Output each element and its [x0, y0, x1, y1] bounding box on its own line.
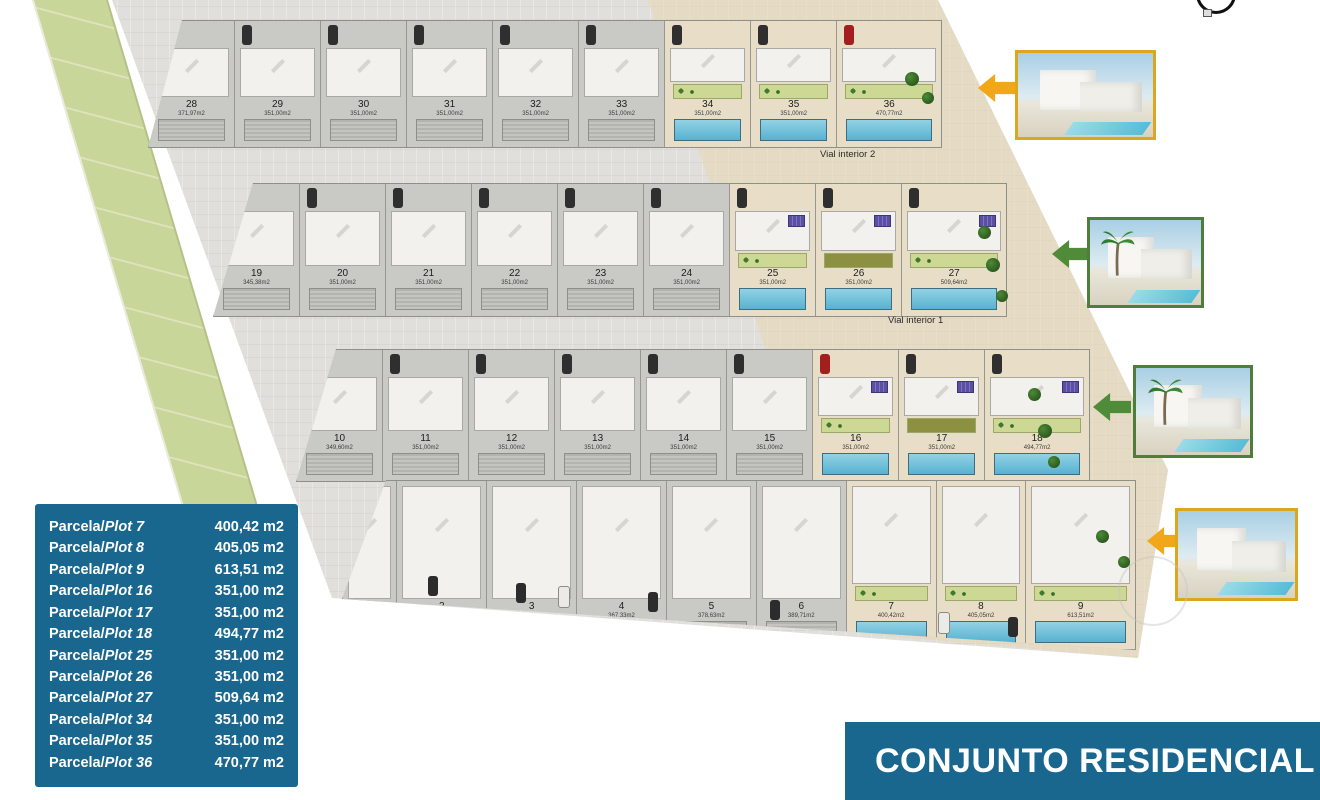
palm-tree-icon — [1094, 223, 1141, 277]
garden-patch — [673, 84, 742, 99]
house-footprint — [821, 211, 896, 251]
plot-4: 4 367,33m2 — [577, 481, 667, 649]
driveway — [392, 453, 459, 475]
car-icon — [758, 25, 768, 45]
driveway — [352, 621, 387, 643]
villa-building — [1141, 249, 1192, 280]
house-footprint — [492, 486, 571, 599]
tree-icon — [1038, 424, 1052, 438]
car-icon — [479, 188, 489, 208]
compass-icon — [1196, 0, 1236, 14]
car-icon — [307, 188, 317, 208]
plot-label: 16 351,00m2 — [818, 433, 893, 452]
plot-row-19-27: 19 345,38m2 20 351,00m2 21 351,00m2 — [213, 183, 1007, 317]
pool — [822, 453, 889, 475]
house-footprint — [904, 377, 979, 416]
house-footprint — [584, 48, 659, 97]
legend-row: Parcela/Plot 9613,51 m2 — [49, 560, 284, 581]
plot-27: 27 509,64m2 — [902, 184, 1006, 316]
car-icon — [992, 354, 1002, 374]
driveway — [416, 119, 483, 141]
plot-label: 7 400,42m2 — [852, 601, 931, 620]
tree-icon — [986, 258, 1000, 272]
house-footprint — [402, 486, 481, 599]
plot-label: 9 613,51m2 — [1031, 601, 1130, 620]
plot-12: 12 351,00m2 — [469, 350, 555, 481]
driveway — [588, 119, 655, 141]
car-icon — [938, 612, 950, 634]
car-icon — [909, 188, 919, 208]
house-footprint — [391, 211, 466, 266]
plot-7: 7 400,42m2 — [847, 481, 937, 649]
driveway — [330, 119, 397, 141]
tree-icon — [996, 290, 1008, 302]
legend-row: Parcela/Plot 26351,00 m2 — [49, 667, 284, 688]
villa-photo — [1087, 217, 1204, 308]
house-footprint — [412, 48, 487, 97]
house-footprint — [563, 211, 638, 266]
car-icon — [500, 25, 510, 45]
plot-label: 31 351,00m2 — [412, 99, 487, 118]
driveway — [158, 119, 225, 141]
house-footprint — [388, 377, 463, 431]
plot-label: 13 351,00m2 — [560, 433, 635, 452]
car-icon — [734, 354, 744, 374]
legend-row: Parcela/Plot 36470,77 m2 — [49, 753, 284, 774]
car-icon — [414, 25, 424, 45]
plot-17: 17 351,00m2 — [899, 350, 985, 481]
garden-patch — [738, 253, 807, 268]
plot-35: 35 351,00m2 — [751, 21, 837, 147]
garden-patch — [855, 586, 928, 601]
car-icon — [328, 25, 338, 45]
legend-row: Parcela/Plot 7400,42 m2 — [49, 517, 284, 538]
plot-22: 22 351,00m2 — [472, 184, 558, 316]
driveway — [650, 453, 717, 475]
garden-patch — [1034, 586, 1127, 601]
plot-36: 36 470,77m2 — [837, 21, 941, 147]
driveway — [309, 288, 376, 310]
driveway — [406, 621, 477, 643]
car-icon — [586, 25, 596, 45]
plot-32: 32 351,00m2 — [493, 21, 579, 147]
pool — [760, 119, 827, 141]
plot-label: 11 351,00m2 — [388, 433, 463, 452]
plot-label: 19 345,38m2 — [219, 268, 294, 287]
car-icon — [651, 188, 661, 208]
car-icon — [823, 188, 833, 208]
house-footprint — [474, 377, 549, 431]
plot-label: 34 351,00m2 — [670, 99, 745, 118]
pool — [908, 453, 975, 475]
road-label-vial-interior-2: Vial interior 2 — [820, 149, 875, 160]
house-footprint — [842, 48, 936, 82]
garden-patch — [845, 84, 933, 99]
car-icon — [516, 583, 526, 603]
house-footprint — [762, 486, 841, 599]
car-icon — [770, 600, 780, 620]
pool — [739, 288, 806, 310]
plot-label: 26 351,00m2 — [821, 268, 896, 287]
plot-33: 33 351,00m2 — [579, 21, 665, 147]
car-icon — [820, 354, 830, 374]
villa-building — [1188, 398, 1240, 429]
house-footprint — [477, 211, 552, 266]
car-icon — [565, 188, 575, 208]
plot-label: 14 351,00m2 — [646, 433, 721, 452]
plot-label: 35 351,00m2 — [756, 99, 831, 118]
banner-title: CONJUNTO RESIDENCIAL — [875, 742, 1315, 781]
tree-icon — [922, 92, 934, 104]
car-icon — [672, 25, 682, 45]
car-icon — [648, 354, 658, 374]
plot-label: 25 351,00m2 — [735, 268, 810, 287]
plot-26: 26 351,00m2 — [816, 184, 902, 316]
legend-row: Parcela/Plot 35351,00 m2 — [49, 731, 284, 752]
driveway — [395, 288, 462, 310]
plot-label: 10 349,60m2 — [302, 433, 377, 452]
plot-label: 36 470,77m2 — [842, 99, 936, 118]
plot-2: 2 300,30m2 — [397, 481, 487, 649]
plot-label: 22 351,00m2 — [477, 268, 552, 287]
house-footprint — [646, 377, 721, 431]
driveway — [244, 119, 311, 141]
plot-6: 6 389,71m2 — [757, 481, 847, 649]
villa-pool — [1175, 439, 1250, 452]
plot-label: 29 351,00m2 — [240, 99, 315, 118]
garden-patch — [910, 253, 998, 268]
plot-14: 14 351,00m2 — [641, 350, 727, 481]
house-footprint — [735, 211, 810, 251]
plot-label: 15 351,00m2 — [732, 433, 807, 452]
car-icon — [1008, 617, 1018, 637]
car-icon — [844, 25, 854, 45]
house-footprint — [582, 486, 661, 599]
plot-30: 30 351,00m2 — [321, 21, 407, 147]
house-footprint — [672, 486, 751, 599]
road-label-vial-interior-1: Vial interior 1 — [888, 315, 943, 326]
garden-patch — [821, 418, 890, 433]
tree-icon — [978, 226, 991, 239]
car-icon — [906, 354, 916, 374]
plot-20: 20 351,00m2 — [300, 184, 386, 316]
plot-label: 33 351,00m2 — [584, 99, 659, 118]
car-icon — [390, 354, 400, 374]
driveway — [567, 288, 634, 310]
car-icon — [428, 576, 438, 596]
villa-building — [1080, 82, 1142, 112]
pool — [674, 119, 741, 141]
legend-row: Parcela/Plot 18494,77 m2 — [49, 624, 284, 645]
plot-label: 28 371,97m2 — [154, 99, 229, 118]
plot-area-legend: Parcela/Plot 7400,42 m2 Parcela/Plot 840… — [35, 504, 298, 787]
tree-icon — [1028, 388, 1041, 401]
legend-row: Parcela/Plot 16351,00 m2 — [49, 581, 284, 602]
project-banner: CONJUNTO RESIDENCIAL — [845, 722, 1320, 800]
plot-3: 3 356,48m2 — [487, 481, 577, 649]
house-footprint — [240, 48, 315, 97]
plot-15: 15 351,00m2 — [727, 350, 813, 481]
legend-row: Parcela/Plot 25351,00 m2 — [49, 646, 284, 667]
car-icon — [737, 188, 747, 208]
driveway — [653, 288, 720, 310]
driveway — [736, 453, 803, 475]
plot-label: 24 351,00m2 — [649, 268, 724, 287]
car-icon — [242, 25, 252, 45]
plot-23: 23 351,00m2 — [558, 184, 644, 316]
villa-pool — [1128, 290, 1201, 303]
palm-tree-icon — [1141, 371, 1189, 427]
tree-icon — [1096, 530, 1109, 543]
plot-row-28-36: 28 371,97m2 29 351,00m2 30 351,00m2 — [148, 20, 942, 148]
villa-photo — [1133, 365, 1253, 458]
legend-row: Parcela/Plot 27509,64 m2 — [49, 688, 284, 709]
driveway — [481, 288, 548, 310]
plot-label: 21 351,00m2 — [391, 268, 466, 287]
pool — [846, 119, 932, 141]
villa-building — [1232, 541, 1286, 572]
pool — [911, 288, 997, 310]
house-footprint — [670, 48, 745, 82]
plot-label: 5 378,63m2 — [672, 601, 751, 620]
driveway — [502, 119, 569, 141]
driveway — [478, 453, 545, 475]
house-footprint — [732, 377, 807, 431]
villa-photo — [1175, 508, 1298, 601]
plot-13: 13 351,00m2 — [555, 350, 641, 481]
car-icon — [393, 188, 403, 208]
house-footprint — [942, 486, 1021, 584]
plot-18: 18 494,77m2 — [985, 350, 1089, 481]
plot-label: 20 351,00m2 — [305, 268, 380, 287]
plot-label: 30 351,00m2 — [326, 99, 401, 118]
driveway — [306, 453, 373, 475]
legend-row: Parcela/Plot 17351,00 m2 — [49, 603, 284, 624]
watermark-ring — [1118, 556, 1188, 626]
house-footprint — [649, 211, 724, 266]
plot-25: 25 351,00m2 — [730, 184, 816, 316]
compass-mark-icon — [1203, 9, 1212, 17]
garden-patch — [824, 253, 893, 268]
plot-row-10-18: 10 349,60m2 11 351,00m2 12 351,00m2 — [296, 349, 1090, 482]
driveway — [586, 621, 657, 643]
plot-29: 29 351,00m2 — [235, 21, 321, 147]
house-footprint — [326, 48, 401, 97]
villa-pool — [1218, 582, 1295, 595]
garden-patch — [945, 586, 1018, 601]
plot-label: 12 351,00m2 — [474, 433, 549, 452]
plot-16: 16 351,00m2 — [813, 350, 899, 481]
driveway — [564, 453, 631, 475]
plot-label: 27 509,64m2 — [907, 268, 1001, 287]
villa-pool — [1065, 122, 1152, 135]
plot-34: 34 351,00m2 — [665, 21, 751, 147]
house-footprint — [560, 377, 635, 431]
garden-patch — [759, 84, 828, 99]
garden-patch — [907, 418, 976, 433]
car-icon — [562, 354, 572, 374]
villa-photo — [1015, 50, 1156, 140]
car-icon — [648, 592, 658, 612]
legend-row: Parcela/Plot 34351,00 m2 — [49, 710, 284, 731]
house-footprint — [498, 48, 573, 97]
tree-icon — [905, 72, 919, 86]
house-footprint — [852, 486, 931, 584]
plot-label: 23 351,00m2 — [563, 268, 638, 287]
house-footprint — [818, 377, 893, 416]
legend-row: Parcela/Plot 8405,05 m2 — [49, 538, 284, 559]
plot-11: 11 351,00m2 — [383, 350, 469, 481]
plot-label: 32 351,00m2 — [498, 99, 573, 118]
driveway — [496, 621, 567, 643]
car-icon — [558, 586, 570, 608]
plot-24: 24 351,00m2 — [644, 184, 730, 316]
site-plan-page: 28 371,97m2 29 351,00m2 30 351,00m2 — [0, 0, 1320, 800]
house-footprint — [305, 211, 380, 266]
pool — [825, 288, 892, 310]
tree-icon — [1048, 456, 1060, 468]
plot-31: 31 351,00m2 — [407, 21, 493, 147]
plot-label: 1 290,71m2 — [348, 601, 391, 620]
pool — [994, 453, 1080, 475]
plot-label: 17 351,00m2 — [904, 433, 979, 452]
plot-label: 18 494,77m2 — [990, 433, 1084, 452]
house-footprint — [1031, 486, 1130, 584]
plot-21: 21 351,00m2 — [386, 184, 472, 316]
house-footprint — [756, 48, 831, 82]
car-icon — [476, 354, 486, 374]
pool — [1035, 621, 1126, 643]
driveway — [223, 288, 290, 310]
